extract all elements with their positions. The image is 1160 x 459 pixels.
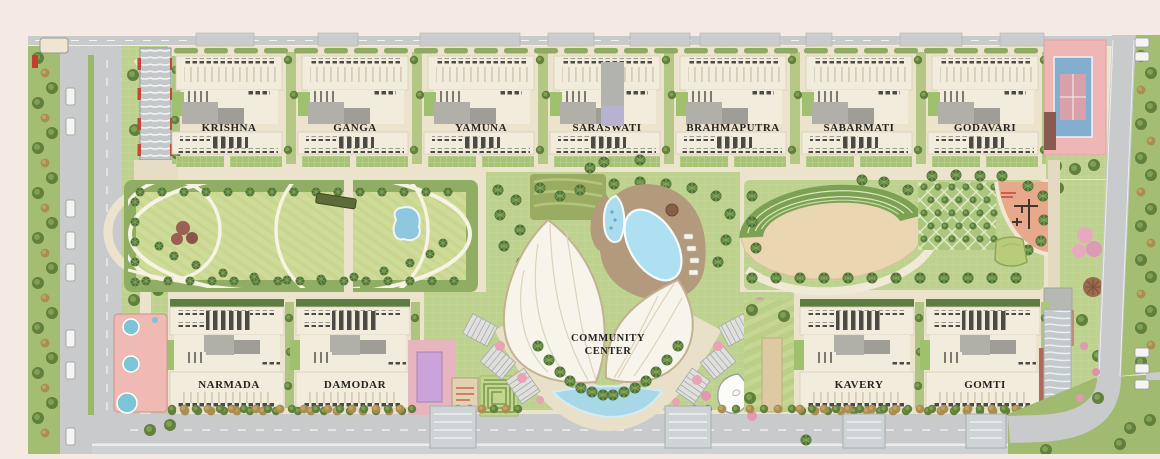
svg-text:GODAVARI: GODAVARI	[954, 122, 1016, 134]
svg-text:CENTER: CENTER	[585, 346, 632, 357]
svg-text:GOMTI: GOMTI	[964, 379, 1006, 391]
svg-text:DAMODAR: DAMODAR	[324, 379, 387, 391]
svg-text:YAMUNA: YAMUNA	[455, 122, 507, 134]
svg-text:COMMUNITY: COMMUNITY	[571, 333, 645, 344]
svg-text:GANGA: GANGA	[333, 122, 376, 134]
svg-text:KAVERY: KAVERY	[835, 379, 884, 391]
svg-text:SABARMATI: SABARMATI	[824, 122, 895, 134]
svg-text:NARMADA: NARMADA	[198, 379, 260, 391]
svg-text:KRISHNA: KRISHNA	[202, 122, 257, 134]
svg-text:BRAHMAPUTRA: BRAHMAPUTRA	[686, 122, 780, 134]
